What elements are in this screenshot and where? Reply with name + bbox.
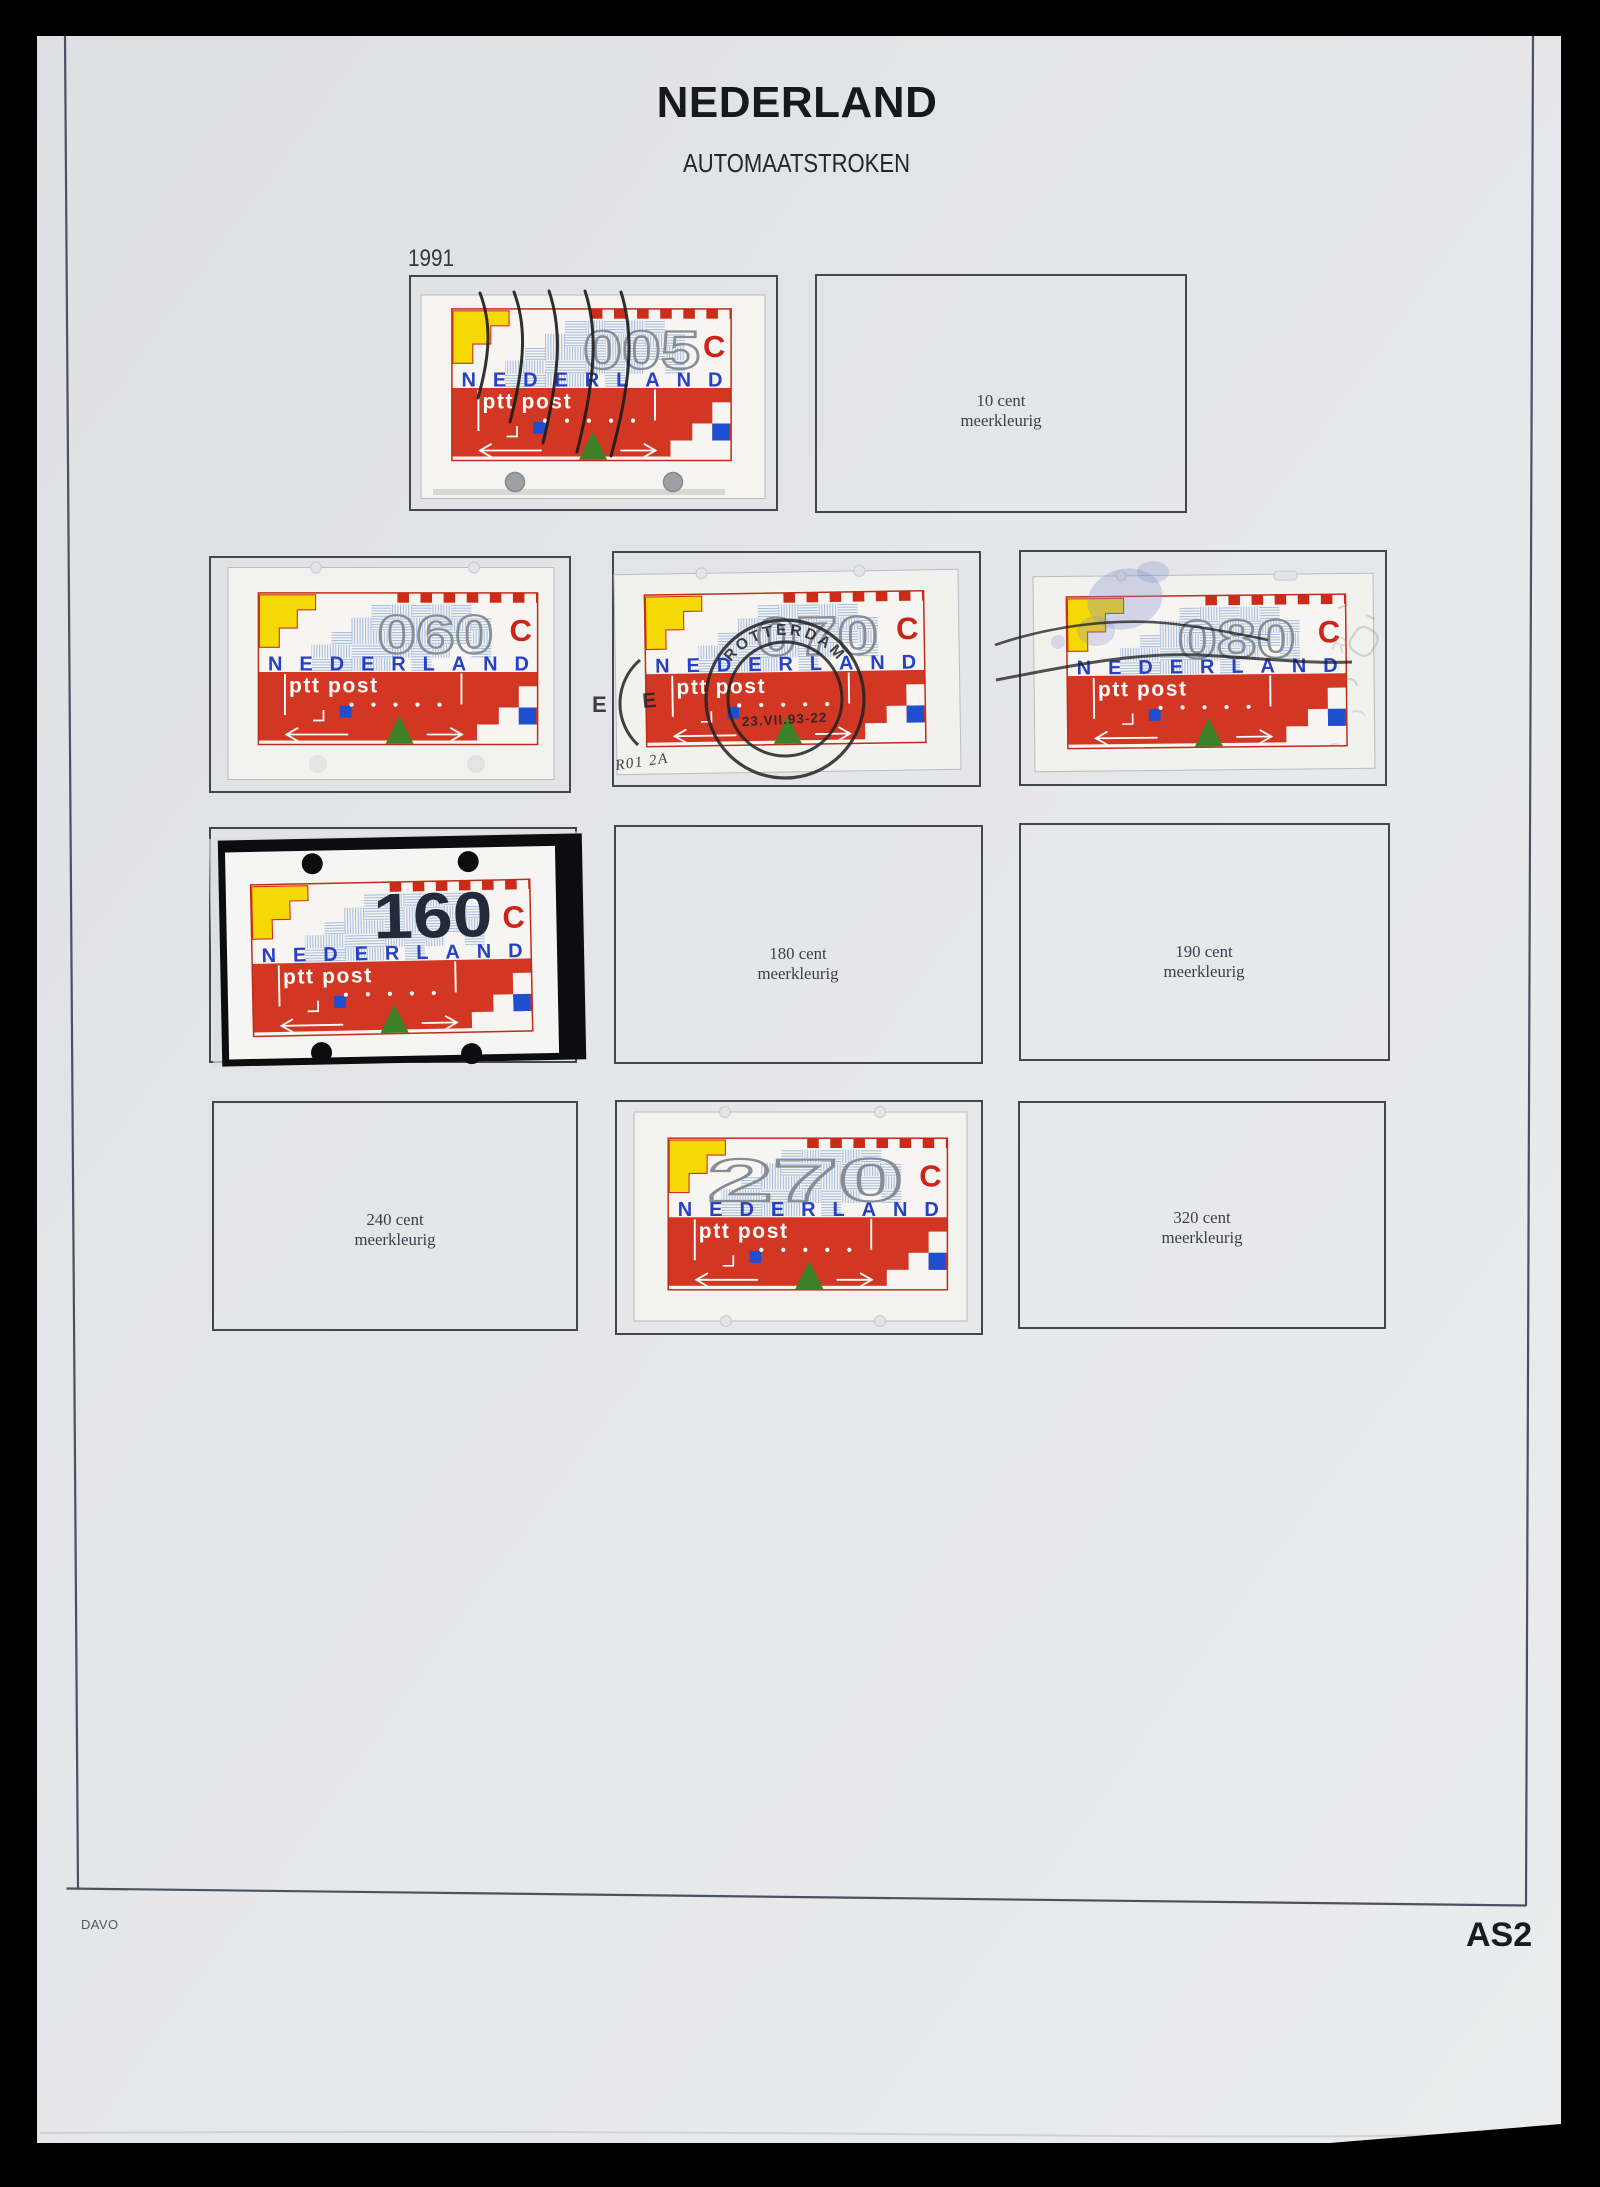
- svg-text:240 cent: 240 cent: [366, 1210, 424, 1229]
- svg-text:AUTOMAATSTROKEN: AUTOMAATSTROKEN: [683, 148, 910, 178]
- svg-text:NEDERLAND: NEDERLAND: [657, 78, 938, 127]
- svg-text:270: 270: [708, 1147, 904, 1214]
- svg-text:060: 060: [378, 605, 494, 665]
- svg-text:DAVO: DAVO: [81, 1917, 118, 1932]
- svg-text:meerkleurig: meerkleurig: [1161, 1228, 1243, 1247]
- svg-text:190 cent: 190 cent: [1175, 942, 1233, 961]
- svg-text:10 cent: 10 cent: [977, 391, 1026, 410]
- svg-text:1991: 1991: [408, 245, 454, 272]
- svg-text:AS2: AS2: [1466, 1916, 1532, 1954]
- svg-text:160: 160: [373, 878, 493, 952]
- svg-text:005: 005: [583, 321, 700, 381]
- svg-text:meerkleurig: meerkleurig: [1163, 962, 1245, 981]
- svg-text:meerkleurig: meerkleurig: [960, 411, 1042, 430]
- svg-text:E: E: [592, 692, 607, 717]
- svg-text:320 cent: 320 cent: [1173, 1208, 1231, 1227]
- svg-text:180 cent: 180 cent: [769, 944, 827, 963]
- svg-text:E: E: [641, 689, 657, 713]
- svg-text:meerkleurig: meerkleurig: [354, 1230, 436, 1249]
- svg-text:meerkleurig: meerkleurig: [757, 964, 839, 983]
